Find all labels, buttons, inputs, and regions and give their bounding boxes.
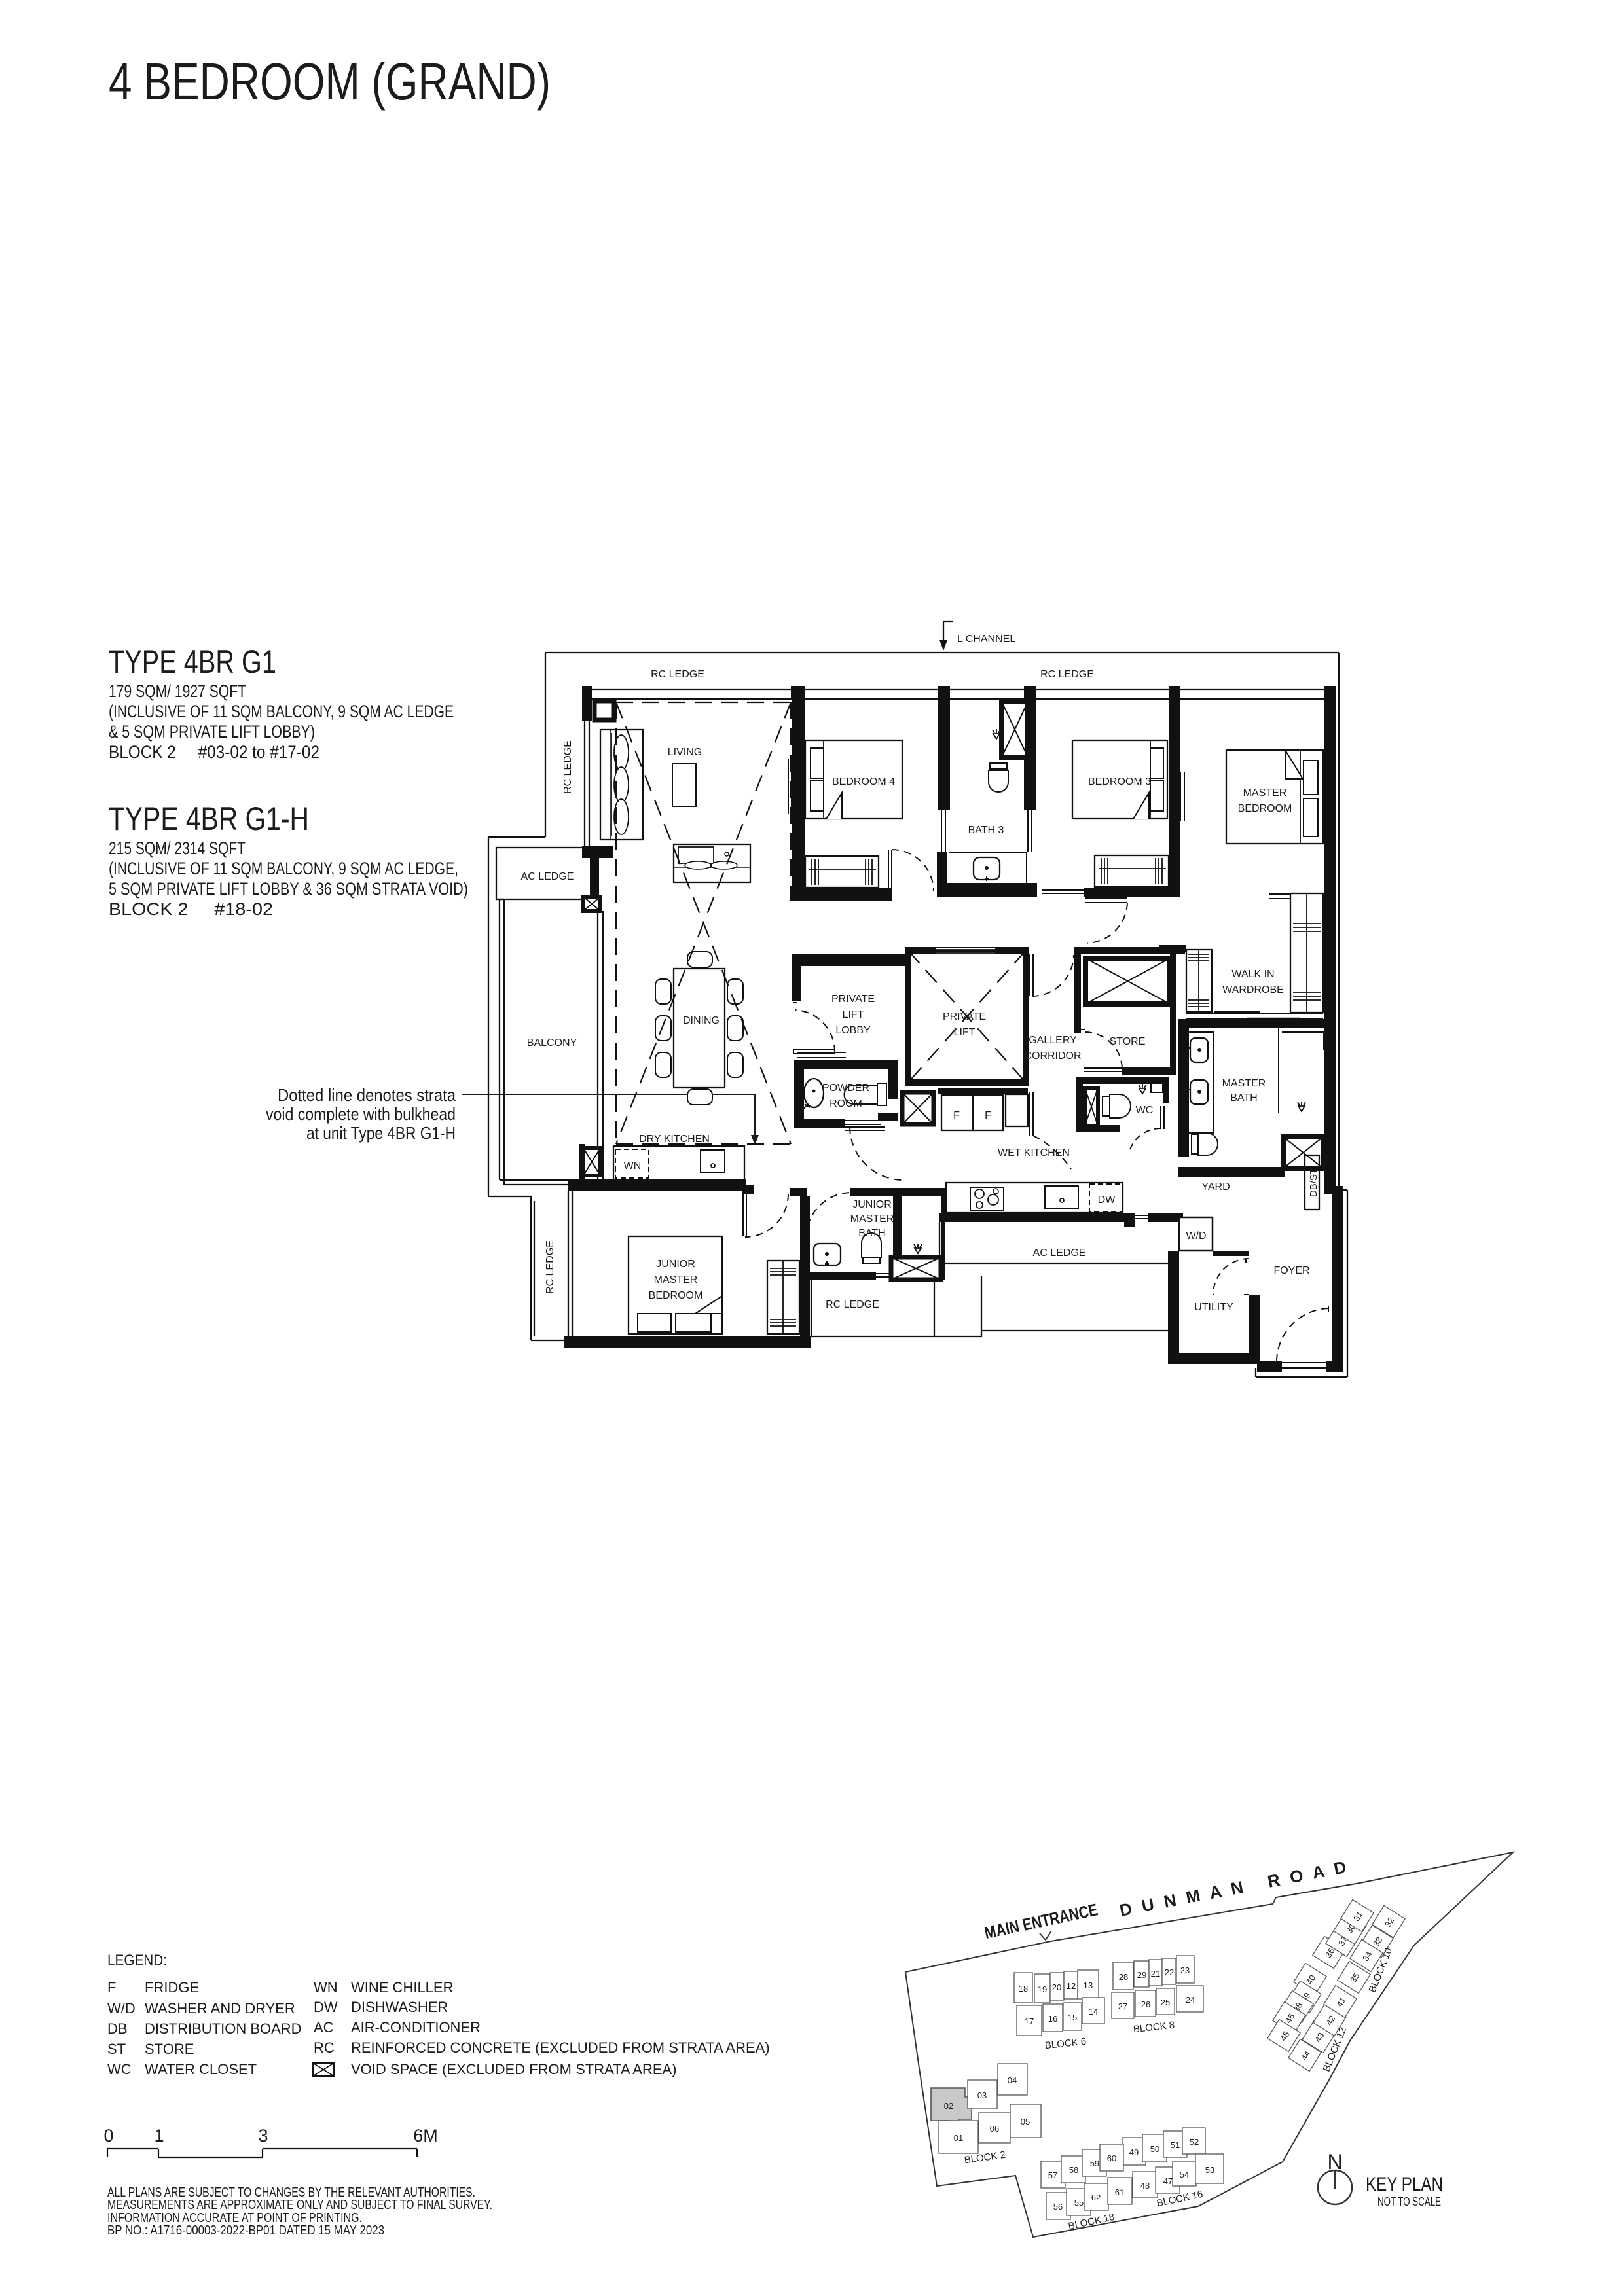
svg-text:27: 27 [1118,2001,1127,2011]
svg-text:L CHANNEL: L CHANNEL [957,634,1015,645]
svg-text:JUNIOR: JUNIOR [656,1259,695,1270]
svg-text:(INCLUSIVE OF 11 SQM BALCONY,: (INCLUSIVE OF 11 SQM BALCONY, 9 SQM AC L… [109,859,458,878]
svg-text:56: 56 [1053,2202,1063,2212]
svg-text:MASTER: MASTER [654,1274,698,1285]
svg-text:JUNIOR: JUNIOR [852,1199,892,1210]
svg-text:62: 62 [1091,2193,1101,2202]
svg-text:Dotted line denotes strata: Dotted line denotes strata [278,1085,456,1105]
svg-text:WET KITCHEN: WET KITCHEN [998,1147,1070,1158]
svg-text:BEDROOM: BEDROOM [649,1290,703,1301]
svg-text:BATH: BATH [858,1228,885,1239]
svg-text:BLOCK 2 #18-02: BLOCK 2 #18-02 [109,899,273,919]
svg-text:1: 1 [154,2126,164,2145]
svg-text:TYPE 4BR G1-H: TYPE 4BR G1-H [109,800,309,837]
svg-text:16: 16 [1048,2014,1057,2024]
svg-text:BATH: BATH [1230,1092,1257,1103]
svg-text:22: 22 [1165,1967,1174,1977]
svg-text:48: 48 [1140,2181,1150,2191]
svg-text:WALK IN: WALK IN [1231,969,1274,980]
svg-text:LIFT: LIFT [954,1027,976,1038]
svg-text:WN: WN [314,1979,338,1996]
svg-text:RC: RC [314,2039,335,2056]
svg-text:50: 50 [1150,2144,1159,2154]
svg-text:BP NO.: A1716-00003-2022-BP01: BP NO.: A1716-00003-2022-BP01 DATED 15 M… [107,2223,384,2238]
svg-text:06: 06 [990,2124,999,2134]
svg-text:DB/ST: DB/ST [1308,1168,1319,1197]
svg-text:WASHER AND DRYER: WASHER AND DRYER [145,2000,295,2017]
svg-text:25: 25 [1161,1998,1170,2007]
svg-text:F: F [107,1979,116,1996]
svg-text:BEDROOM: BEDROOM [1238,803,1292,814]
svg-text:4 BEDROOM (GRAND): 4 BEDROOM (GRAND) [109,52,551,111]
svg-text:57: 57 [1048,2170,1057,2180]
svg-text:DINING: DINING [683,1015,720,1026]
svg-text:58: 58 [1069,2165,1078,2175]
svg-text:04: 04 [1008,2075,1017,2085]
svg-text:WC: WC [1136,1105,1154,1116]
svg-text:VOID SPACE (EXCLUDED FROM STRA: VOID SPACE (EXCLUDED FROM STRATA AREA) [351,2061,677,2077]
svg-text:23: 23 [1180,1965,1190,1975]
svg-text:12: 12 [1067,1981,1076,1991]
svg-text:BATH 3: BATH 3 [968,825,1004,836]
svg-text:WC: WC [107,2061,132,2077]
svg-text:RC LEDGE: RC LEDGE [1040,669,1094,680]
svg-text:RC LEDGE: RC LEDGE [651,669,704,680]
svg-text:BALCONY: BALCONY [527,1037,577,1049]
svg-text:55: 55 [1074,2198,1084,2208]
svg-text:LIFT: LIFT [843,1009,864,1020]
svg-text:26: 26 [1141,2000,1150,2009]
svg-text:FRIDGE: FRIDGE [145,1979,199,1996]
svg-text:BEDROOM 3: BEDROOM 3 [1088,776,1151,787]
svg-text:ST: ST [107,2041,126,2057]
svg-text:49: 49 [1129,2147,1139,2157]
svg-text:3: 3 [258,2126,268,2145]
svg-text:STORE: STORE [1110,1036,1146,1047]
svg-text:CORRIDOR: CORRIDOR [1024,1050,1081,1062]
svg-text:at unit Type 4BR G1-H: at unit Type 4BR G1-H [306,1123,456,1143]
svg-text:MASTER: MASTER [1222,1078,1266,1089]
svg-text:W/D: W/D [107,2000,136,2017]
svg-text:PRIVATE: PRIVATE [943,1011,986,1022]
svg-text:0: 0 [103,2126,113,2145]
svg-text:47: 47 [1163,2176,1173,2186]
svg-text:24: 24 [1186,1995,1195,2005]
svg-text:52: 52 [1190,2137,1199,2147]
svg-text:& 5 SQM PRIVATE LIFT LOBBY): & 5 SQM PRIVATE LIFT LOBBY) [109,722,315,742]
svg-text:29: 29 [1137,1970,1146,1980]
svg-text:AC: AC [314,2019,334,2036]
svg-text:STORE: STORE [145,2041,194,2057]
svg-text:MASTER: MASTER [850,1213,894,1225]
svg-text:21: 21 [1151,1969,1160,1979]
svg-text:POWDER: POWDER [822,1083,869,1094]
svg-text:5 SQM PRIVATE LIFT LOBBY & 36: 5 SQM PRIVATE LIFT LOBBY & 36 SQM STRATA… [109,879,468,899]
svg-text:PRIVATE: PRIVATE [831,994,875,1005]
svg-text:WN: WN [624,1160,642,1172]
svg-text:LIVING: LIVING [668,747,702,758]
svg-text:RC LEDGE: RC LEDGE [545,1240,556,1294]
svg-text:03: 03 [977,2090,987,2100]
svg-text:N: N [1327,2150,1342,2174]
svg-text:(INCLUSIVE OF 11 SQM BALCONY,: (INCLUSIVE OF 11 SQM BALCONY, 9 SQM AC L… [109,702,454,721]
svg-text:02: 02 [944,2101,953,2111]
svg-text:6M: 6M [413,2126,438,2145]
svg-text:REINFORCED CONCRETE (EXCLUDED: REINFORCED CONCRETE (EXCLUDED FROM STRAT… [351,2039,770,2056]
svg-text:DISHWASHER: DISHWASHER [351,1999,448,2015]
svg-text:51: 51 [1171,2140,1180,2150]
svg-text:59: 59 [1090,2159,1099,2168]
svg-text:YARD: YARD [1201,1181,1230,1193]
svg-text:WINE CHILLER: WINE CHILLER [351,1979,453,1996]
svg-text:DW: DW [1098,1194,1116,1206]
svg-text:AC LEDGE: AC LEDGE [521,871,574,882]
svg-text:14: 14 [1089,2007,1098,2017]
svg-text:NOT TO SCALE: NOT TO SCALE [1377,2195,1441,2208]
svg-text:19: 19 [1038,1984,1047,1994]
svg-text:15: 15 [1068,2013,1077,2022]
svg-text:DW: DW [314,1999,338,2015]
svg-text:MASTER: MASTER [1243,787,1287,798]
svg-text:54: 54 [1180,2170,1189,2179]
svg-text:17: 17 [1025,2017,1034,2026]
svg-text:DRY KITCHEN: DRY KITCHEN [639,1134,710,1145]
svg-text:BEDROOM 4: BEDROOM 4 [832,776,895,787]
svg-text:AC LEDGE: AC LEDGE [1033,1247,1086,1259]
svg-text:UTILITY: UTILITY [1194,1302,1233,1313]
svg-text:RC LEDGE: RC LEDGE [562,740,574,794]
svg-text:DB: DB [107,2020,128,2037]
svg-text:53: 53 [1205,2165,1214,2175]
svg-text:void complete with bulkhead: void complete with bulkhead [266,1104,456,1124]
svg-text:05: 05 [1021,2117,1030,2126]
svg-text:LEGEND:: LEGEND: [107,1952,167,1969]
svg-text:GALLERY: GALLERY [1029,1035,1077,1046]
svg-text:20: 20 [1052,1982,1061,1992]
svg-text:TYPE 4BR G1: TYPE 4BR G1 [109,643,276,680]
svg-text:01: 01 [954,2133,963,2143]
svg-text:F: F [953,1110,960,1121]
svg-text:LOBBY: LOBBY [835,1025,871,1036]
svg-text:61: 61 [1115,2187,1124,2197]
svg-text:13: 13 [1084,1981,1093,1990]
svg-text:28: 28 [1119,1972,1128,1982]
svg-text:F: F [985,1110,991,1121]
svg-text:FOYER: FOYER [1273,1265,1309,1276]
svg-text:AIR-CONDITIONER: AIR-CONDITIONER [351,2019,481,2036]
svg-text:179 SQM/ 1927 SQFT: 179 SQM/ 1927 SQFT [109,681,246,701]
svg-text:DISTRIBUTION BOARD: DISTRIBUTION BOARD [145,2020,302,2037]
svg-text:KEY PLAN: KEY PLAN [1366,2174,1443,2195]
svg-text:RC LEDGE: RC LEDGE [826,1299,879,1310]
svg-text:BLOCK 2 #03-02 to #17-02: BLOCK 2 #03-02 to #17-02 [109,742,319,762]
svg-text:215 SQM/ 2314 SQFT: 215 SQM/ 2314 SQFT [109,838,246,858]
svg-text:18: 18 [1019,1984,1028,1994]
svg-text:WATER CLOSET: WATER CLOSET [145,2061,257,2077]
svg-text:ROOM: ROOM [830,1098,862,1109]
svg-text:60: 60 [1107,2153,1116,2163]
svg-text:WARDROBE: WARDROBE [1222,984,1284,996]
svg-text:W/D: W/D [1186,1230,1206,1242]
